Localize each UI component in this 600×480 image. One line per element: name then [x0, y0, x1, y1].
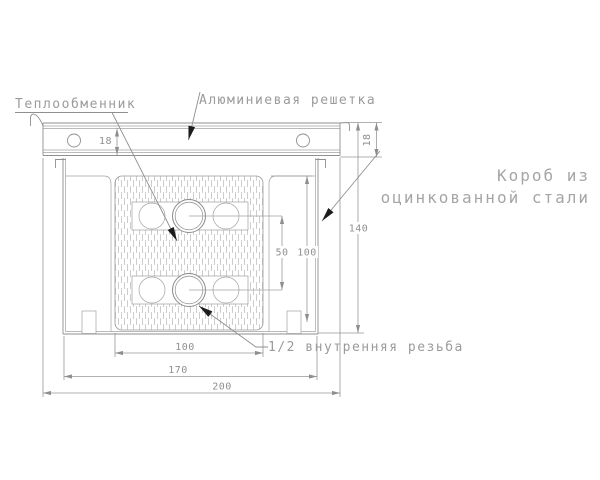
dim-text-exchanger-width: 100	[175, 342, 195, 353]
dim-text-box-width: 170	[168, 365, 188, 376]
label-thread: 1/2 внутренняя резьба	[268, 340, 464, 355]
dim-text-grille-height-left: 18	[99, 136, 112, 147]
technical-drawing-page: 18 18 140 100 50 100 170 200	[0, 0, 600, 480]
box-left-lip	[56, 160, 66, 169]
dim-text-pipe-spacing: 50	[275, 248, 288, 259]
box-right-lip	[316, 160, 326, 169]
box-foot-right	[287, 311, 301, 334]
label-heat-exchanger: Теплообменник	[15, 97, 136, 112]
grille-left-curl	[30, 114, 43, 126]
grille-hole-left	[68, 134, 81, 147]
dim-text-grille-width: 200	[212, 382, 232, 393]
grille-hole-right	[297, 134, 310, 147]
box-foot-left	[82, 311, 96, 334]
annotations: Теплообменник Алюминиевая решетка Короб …	[15, 92, 590, 355]
dim-text-grille-height-right: 18	[362, 133, 373, 146]
label-galvanized-box-line2: оцинкованной стали	[381, 188, 590, 207]
leader-aluminum-grille	[189, 92, 201, 140]
dim-text-inner-height: 100	[297, 248, 317, 259]
grille-right-curl	[340, 123, 350, 132]
heat-exchanger	[115, 176, 282, 330]
pipe-circle-top-left	[139, 203, 165, 229]
technical-drawing-svg: 18 18 140 100 50 100 170 200	[0, 0, 600, 480]
dim-text-box-height: 140	[349, 224, 369, 235]
leader-galvanized-box	[322, 151, 380, 221]
box-liner-left	[66, 176, 112, 332]
pipe-circle-bottom-left	[139, 277, 165, 303]
label-aluminum-grille: Алюминиевая решетка	[199, 93, 376, 108]
label-galvanized-box-line1: Короб из	[497, 166, 590, 185]
